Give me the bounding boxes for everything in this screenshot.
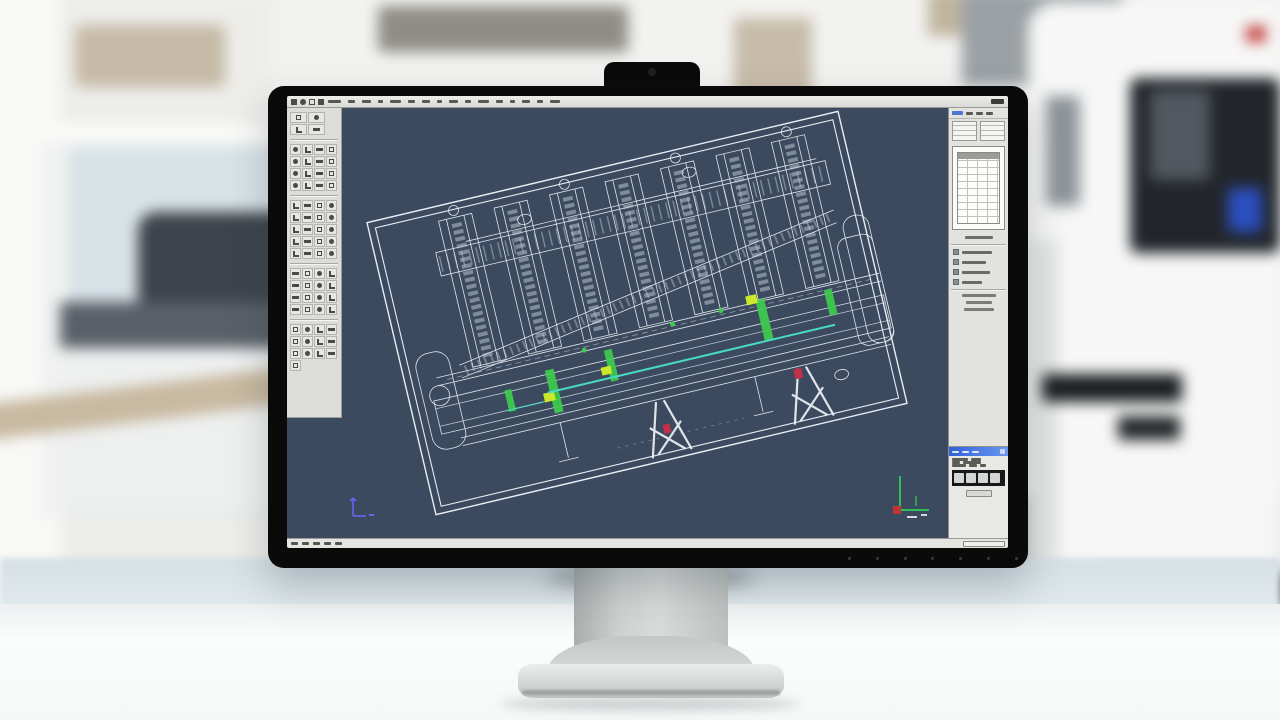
- toolbar-icon[interactable]: [302, 268, 313, 279]
- menu-item[interactable]: [550, 100, 560, 103]
- dialog-titlebar[interactable]: [949, 447, 1008, 456]
- toolbar-icon[interactable]: [308, 124, 325, 135]
- toolbar-icon[interactable]: [290, 156, 301, 167]
- panel-tool-button[interactable]: [986, 112, 993, 115]
- toolbar-icon[interactable]: [326, 144, 337, 155]
- monitor-button[interactable]: [1015, 557, 1018, 560]
- tool-palette: [287, 108, 342, 418]
- cad-application-screen: [287, 96, 1008, 548]
- monitor-button[interactable]: [987, 557, 990, 560]
- property-row[interactable]: [949, 277, 1008, 287]
- lab-machine-window-glint: [1150, 90, 1210, 180]
- preview-caption: [949, 233, 1008, 242]
- toolbar-icon[interactable]: [314, 200, 325, 211]
- stand-base-shadow: [500, 697, 800, 711]
- monitor-control-buttons: [848, 554, 1018, 562]
- menu-item[interactable]: [465, 100, 471, 103]
- command-line-marks[interactable]: [287, 542, 342, 545]
- toolbar-icon[interactable]: [302, 248, 313, 259]
- toolbar-icon[interactable]: [302, 304, 313, 315]
- toolbar-icon[interactable]: [314, 224, 325, 235]
- wall-panel: [75, 25, 225, 87]
- toolbar-icon[interactable]: [326, 324, 337, 335]
- dialog-close-icon[interactable]: [1000, 449, 1005, 454]
- menu-item[interactable]: [362, 100, 371, 103]
- toolbar-icon[interactable]: [290, 124, 307, 135]
- lab-machine-shading: [1028, 240, 1058, 590]
- note-row: [949, 292, 1008, 299]
- toolbar-icon[interactable]: [314, 144, 325, 155]
- toolbar-icon[interactable]: [290, 304, 301, 315]
- menubar-left-icons: [287, 99, 328, 105]
- filmstrip-frame: [978, 473, 988, 483]
- toolbar-icon[interactable]: [326, 348, 337, 359]
- property-row[interactable]: [949, 247, 1008, 257]
- statusbar-button[interactable]: [963, 541, 1005, 547]
- webcam-lens-icon: [648, 68, 656, 76]
- axis-tripod-icon: [893, 476, 929, 518]
- menu-item[interactable]: [510, 100, 515, 103]
- toolbar-icon[interactable]: [314, 348, 325, 359]
- window-controls-icon[interactable]: [991, 99, 1004, 104]
- panel-divider: [951, 244, 1006, 245]
- toolbar-icon[interactable]: [290, 324, 301, 335]
- filmstrip-frame: [990, 473, 1000, 483]
- sketch-thumbnails: [949, 119, 1008, 143]
- panel-section-notes: [949, 292, 1008, 313]
- menu-item[interactable]: [328, 100, 341, 103]
- menu-item[interactable]: [348, 100, 355, 103]
- toolbar-icon[interactable]: [326, 280, 337, 291]
- toolbar-icon[interactable]: [326, 268, 337, 279]
- toolbar-icon[interactable]: [326, 200, 337, 211]
- toolbar-icon[interactable]: [314, 336, 325, 347]
- panel-dialog: [949, 446, 1008, 538]
- menu-item[interactable]: [408, 100, 415, 103]
- panel-divider: [951, 289, 1006, 290]
- toolbar-icon[interactable]: [326, 212, 337, 223]
- filmstrip-frame: [954, 473, 964, 483]
- menu-item[interactable]: [537, 100, 543, 103]
- dialog-body: [949, 456, 1008, 538]
- ceiling-beam: [378, 6, 628, 52]
- monitor: [268, 86, 1028, 568]
- monitor-button[interactable]: [876, 557, 879, 560]
- toolbar-icon[interactable]: [290, 112, 307, 123]
- toolbar-icon[interactable]: [302, 168, 313, 179]
- toolbar-icon[interactable]: [314, 304, 325, 315]
- toolbar-icon[interactable]: [314, 324, 325, 335]
- menubar: [287, 96, 1008, 108]
- toolbar-icon[interactable]: [290, 212, 301, 223]
- toolbar-icon[interactable]: [302, 224, 313, 235]
- toolbar-icon[interactable]: [302, 336, 313, 347]
- toolbar-icon[interactable]: [302, 144, 313, 155]
- monitor-button[interactable]: [848, 557, 851, 560]
- toolbar-icon[interactable]: [302, 280, 313, 291]
- toolbar-icon[interactable]: [302, 180, 313, 191]
- lab-machine-blue-part: [1228, 188, 1262, 232]
- panel-section-properties: [949, 247, 1008, 287]
- menu-item[interactable]: [437, 100, 442, 103]
- property-row[interactable]: [949, 257, 1008, 267]
- toolbar-icon[interactable]: [302, 292, 313, 303]
- toolbar-icon[interactable]: [308, 112, 325, 123]
- panel-tool-button[interactable]: [966, 112, 973, 115]
- properties-panel: [948, 108, 1008, 538]
- toolbar-icon[interactable]: [326, 180, 337, 191]
- toolbar-icon[interactable]: [314, 212, 325, 223]
- toolbar-icon[interactable]: [290, 248, 301, 259]
- undo-icon[interactable]: [318, 99, 324, 105]
- statusbar: [287, 538, 1008, 548]
- menu-item[interactable]: [378, 100, 383, 103]
- monitor-button[interactable]: [931, 557, 934, 560]
- toolbar-icon[interactable]: [314, 168, 325, 179]
- menu-item[interactable]: [478, 100, 489, 103]
- toolbar-icon[interactable]: [290, 236, 301, 247]
- panel-toolstrip: [949, 108, 1008, 119]
- panel-title-mark: [952, 111, 963, 115]
- lab-machine-logo: [1246, 26, 1266, 42]
- toolbar-icon[interactable]: [314, 248, 325, 259]
- menu-item[interactable]: [522, 100, 530, 103]
- toolbar-icon[interactable]: [290, 348, 301, 359]
- property-row[interactable]: [949, 267, 1008, 277]
- property-icon: [953, 259, 959, 265]
- note-row: [949, 306, 1008, 313]
- cad-viewport[interactable]: [287, 108, 948, 538]
- toolbar-icon[interactable]: [326, 236, 337, 247]
- toolbar-icon[interactable]: [326, 156, 337, 167]
- monitor-button[interactable]: [959, 557, 962, 560]
- note-row: [949, 299, 1008, 306]
- toolbar-icon[interactable]: [290, 180, 301, 191]
- toolbar-icon[interactable]: [302, 200, 313, 211]
- lab-machine-dark-strip: [1042, 374, 1182, 402]
- toolbar-icon[interactable]: [290, 336, 301, 347]
- scene: [0, 0, 1280, 720]
- app-icon[interactable]: [291, 99, 297, 105]
- toolbar-icon[interactable]: [326, 304, 337, 315]
- property-icon: [953, 279, 959, 285]
- monitor-button[interactable]: [904, 557, 907, 560]
- toolbar-icon[interactable]: [314, 236, 325, 247]
- toolbar-icon[interactable]: [314, 156, 325, 167]
- toolbar-icon[interactable]: [290, 224, 301, 235]
- sheet-preview[interactable]: [952, 146, 1005, 230]
- menu-item[interactable]: [449, 100, 458, 103]
- ucs-icon: [350, 498, 374, 516]
- toolbar-icon[interactable]: [290, 360, 301, 371]
- toolbar-icon[interactable]: [326, 168, 337, 179]
- toolbar-icon[interactable]: [326, 292, 337, 303]
- toolbar-icon[interactable]: [302, 212, 313, 223]
- toolbar-icon[interactable]: [326, 224, 337, 235]
- dialog-ok-button[interactable]: [966, 490, 992, 497]
- toolbar-icon[interactable]: [302, 348, 313, 359]
- menu-item[interactable]: [390, 100, 401, 103]
- toolbar-icon[interactable]: [326, 248, 337, 259]
- menu-item[interactable]: [496, 100, 503, 103]
- toolbar-icon[interactable]: [290, 292, 301, 303]
- toolbar-icon[interactable]: [314, 280, 325, 291]
- dialog-filmstrip: [952, 470, 1005, 486]
- toolbar-icon[interactable]: [302, 324, 313, 335]
- print-icon[interactable]: [309, 99, 315, 105]
- toolbar-icon[interactable]: [302, 156, 313, 167]
- panel-tool-button[interactable]: [976, 112, 983, 115]
- toolbar-icon[interactable]: [290, 168, 301, 179]
- toolbar-icon[interactable]: [290, 200, 301, 211]
- toolbar-icon[interactable]: [314, 180, 325, 191]
- toolbar-icon[interactable]: [290, 144, 301, 155]
- property-icon: [953, 249, 959, 255]
- parts-table-thumbnail: [957, 152, 1000, 224]
- filmstrip-frame: [966, 473, 976, 483]
- technical-drawing: [367, 110, 911, 514]
- lab-machine-small-window: [1046, 96, 1080, 206]
- toolbar-icon[interactable]: [302, 236, 313, 247]
- stand-base-edge: [522, 690, 780, 695]
- toolbar-icon[interactable]: [290, 280, 301, 291]
- menu-item[interactable]: [422, 100, 430, 103]
- toolbar-icon[interactable]: [314, 292, 325, 303]
- sketch-thumbnail[interactable]: [980, 121, 1005, 141]
- sketch-thumbnail[interactable]: [952, 121, 977, 141]
- lab-machine-dark-strip: [1118, 416, 1180, 440]
- save-icon[interactable]: [300, 99, 306, 105]
- menubar-items: [328, 100, 991, 103]
- property-icon: [953, 269, 959, 275]
- toolbar-icon[interactable]: [290, 268, 301, 279]
- toolbar-icon[interactable]: [326, 336, 337, 347]
- toolbar-icon[interactable]: [314, 268, 325, 279]
